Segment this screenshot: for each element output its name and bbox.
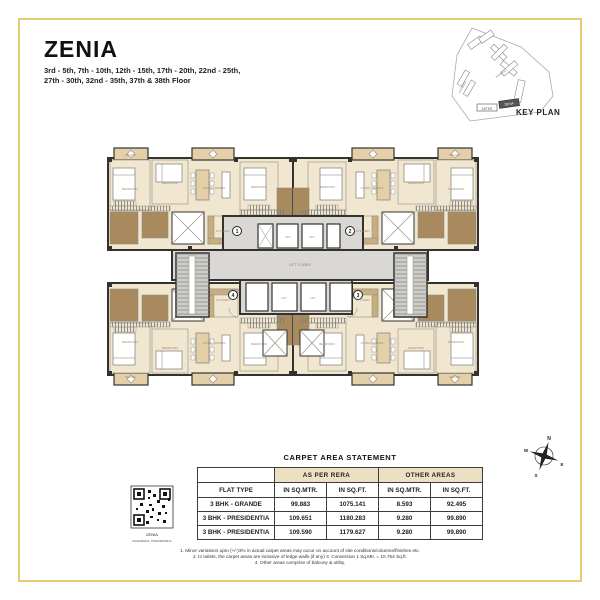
plan-shape [210, 355, 214, 360]
plan-shape [191, 347, 195, 352]
plan-shape [300, 210, 346, 215]
floors-line-2: 27th - 30th, 32nd - 35th, 37th & 38th Fl… [44, 76, 240, 86]
duct-shaft [246, 283, 268, 311]
plan-shape [391, 173, 395, 178]
compass-e: E [560, 462, 563, 467]
keyplan-aster-label: ASTER [482, 107, 493, 111]
plan-shape [450, 327, 472, 332]
table-row: 3 BHK - PRESIDENTIA 109.651 1180.283 9.2… [198, 512, 483, 526]
plan-label: BEDROOM [319, 342, 335, 346]
plan-label: BEDROOM [251, 342, 267, 346]
table-row: 3 BHK - PRESIDENTIA 109.590 1179.627 9.2… [198, 526, 483, 540]
plan-shape [168, 498, 170, 501]
plan-shape [300, 318, 346, 323]
plan-label: LIFT [285, 235, 291, 239]
plan-shape [162, 505, 165, 508]
cell-value: 92.495 [431, 498, 483, 512]
plan-shape [108, 371, 112, 375]
plan-shape [234, 371, 238, 375]
plan-shape [146, 510, 149, 513]
plan-shape [418, 212, 444, 238]
cell-value: 9.280 [379, 512, 431, 526]
plan-label: BEDROOM [122, 340, 138, 344]
plan-shape [372, 173, 376, 178]
cell-value: 99.890 [431, 526, 483, 540]
plan-label: BEDROOM [319, 185, 335, 189]
plan-shape [108, 158, 112, 162]
plan-label: BEDROOM [162, 181, 178, 185]
plan-shape [450, 201, 472, 206]
plan-shape [110, 322, 170, 327]
plan-shape [416, 322, 476, 327]
plan-shape [372, 216, 378, 238]
plan-shape [210, 173, 214, 178]
plan-shape [152, 508, 154, 511]
plan-shape [356, 172, 364, 198]
plan-shape [240, 210, 286, 215]
plan-shape [110, 289, 138, 321]
brochure-page: LIFT LOBBYLIFTLIFTLIFTLIFT1243BEDROOMBED… [0, 0, 600, 600]
plan-label: 4 [232, 293, 235, 299]
plan-shape [391, 339, 395, 344]
compass-s: S [534, 473, 537, 478]
plan-shape [156, 351, 182, 369]
plan-label: BEDROOM [408, 346, 424, 350]
duct-shaft [330, 283, 352, 311]
col-header-sqft-other: IN SQ.FT. [431, 483, 483, 498]
plan-label: KITCHEN [356, 298, 369, 302]
page-title: ZENIA [44, 36, 240, 63]
plan-shape [136, 508, 138, 510]
plan-shape [293, 371, 297, 375]
compass-w: W [524, 448, 529, 453]
plan-shape [113, 168, 135, 200]
floors-line-1: 3rd - 5th, 7th - 10th, 12th - 15th, 17th… [44, 66, 240, 76]
plan-shape [391, 181, 395, 186]
plan-label: BEDROOM [251, 185, 267, 189]
plan-shape [196, 170, 209, 200]
plan-shape [240, 318, 286, 323]
cell-flat-type: 3 BHK - GRANDE [198, 498, 275, 512]
plan-shape [348, 158, 352, 162]
plan-label: BEDROOM [448, 340, 464, 344]
plan-label: BALCONY [125, 376, 137, 379]
plan-shape [191, 173, 195, 178]
plan-label: KITCHEN [216, 229, 229, 233]
table-corner-cell [198, 468, 275, 483]
cell-flat-type: 3 BHK - PRESIDENTIA [198, 512, 275, 526]
duct-shaft [327, 224, 340, 248]
plan-shape [146, 521, 149, 524]
plan-shape [150, 516, 153, 518]
carpet-area-statement: CARPET AREA STATEMENT AS PER RERA OTHER … [197, 453, 483, 540]
header: ZENIA 3rd - 5th, 7th - 10th, 12th - 15th… [44, 36, 240, 86]
col-header-flat-type: FLAT TYPE [198, 483, 275, 498]
plan-shape [372, 347, 376, 352]
plan-shape [474, 246, 478, 250]
plan-shape [191, 339, 195, 344]
plan-label: LIVING / DINING [361, 341, 385, 345]
key-plan-label: KEY PLAN [516, 108, 560, 117]
plan-shape [293, 158, 297, 162]
plan-shape [248, 323, 270, 328]
qr-caption-rera: MAHARERA: P51800000644 [132, 539, 171, 543]
plan-shape [196, 333, 209, 363]
plan-label: BEDROOM [122, 187, 138, 191]
plan-shape [108, 246, 112, 250]
plan-shape [356, 335, 364, 361]
plan-label: BEDROOM [162, 346, 178, 350]
lift-lobby-label: LIFT LOBBY [289, 262, 312, 267]
plan-shape [404, 164, 430, 182]
plan-shape [158, 512, 161, 515]
plan-label: 1 [236, 229, 239, 235]
plan-shape [377, 170, 390, 200]
plan-shape [149, 504, 152, 506]
plan-shape [320, 168, 342, 200]
plan-shape [391, 347, 395, 352]
plan-shape [148, 497, 150, 499]
plan-shape [153, 494, 156, 497]
plan-shape [407, 256, 413, 314]
plan-shape [316, 323, 338, 328]
table-title: CARPET AREA STATEMENT [197, 453, 483, 462]
cell-value: 109.651 [275, 512, 327, 526]
compass-n: N [547, 436, 551, 442]
plan-shape [110, 212, 138, 244]
qr-caption-title: ZENIA [146, 532, 158, 537]
plan-shape [316, 205, 338, 210]
plan-shape [391, 189, 395, 194]
plan-shape [234, 158, 238, 162]
cell-value: 109.590 [275, 526, 327, 540]
plan-shape [372, 355, 376, 360]
plan-shape [148, 490, 151, 493]
plan-label: BALCONY [449, 376, 461, 379]
plan-shape [165, 512, 167, 514]
plan-shape [222, 335, 230, 361]
cell-flat-type: 3 BHK - PRESIDENTIA [198, 526, 275, 540]
cell-value: 1075.141 [327, 498, 379, 512]
plan-shape [191, 181, 195, 186]
plan-shape [474, 283, 478, 287]
cell-value: 99.890 [431, 512, 483, 526]
plan-shape [474, 158, 478, 162]
plan-label: BALCONY [125, 154, 137, 157]
plan-shape [210, 347, 214, 352]
plan-label: BALCONY [449, 154, 461, 157]
plan-shape [248, 205, 270, 210]
plan-label: BEDROOM [408, 181, 424, 185]
plan-shape [377, 333, 390, 363]
plan-shape [372, 295, 378, 317]
col-group-rera: AS PER RERA [275, 468, 379, 483]
plan-shape [157, 500, 160, 503]
plan-shape [114, 201, 136, 206]
plan-label: LIFT [309, 235, 315, 239]
col-header-sqmtr-other: IN SQ.MTR. [379, 483, 431, 498]
plan-shape [244, 168, 266, 200]
plan-shape [137, 492, 141, 496]
col-header-sqft-rera: IN SQ.FT. [327, 483, 379, 498]
plan-label: KITCHEN [216, 298, 229, 302]
plan-label: LIVING / DINING [203, 186, 227, 190]
plan-label: BEDROOM [448, 187, 464, 191]
cell-value: 1180.283 [327, 512, 379, 526]
plan-shape [114, 327, 136, 332]
plan-shape [448, 212, 476, 244]
plan-shape [391, 355, 395, 360]
plan-shape [140, 503, 143, 506]
plan-shape [451, 333, 473, 365]
plan-shape [157, 519, 159, 521]
plan-label: LIFT [310, 296, 316, 300]
plan-label: LIFT [281, 296, 287, 300]
footnotes: 1. Minor variations upto (+/-)3% in actu… [0, 548, 600, 567]
cell-value: 1179.627 [327, 526, 379, 540]
col-header-sqmtr-rera: IN SQ.MTR. [275, 483, 327, 498]
cell-value: 8.593 [379, 498, 431, 512]
plan-shape [163, 492, 167, 496]
plan-shape [222, 172, 230, 198]
plan-shape [208, 216, 214, 238]
plan-label: KITCHEN [356, 229, 369, 233]
plan-shape [448, 289, 476, 321]
plan-shape [163, 520, 166, 523]
plan-shape [474, 371, 478, 375]
plan-shape [113, 333, 135, 365]
cell-value: 9.280 [379, 526, 431, 540]
carpet-area-table: AS PER RERA OTHER AREAS FLAT TYPE IN SQ.… [197, 467, 483, 540]
plan-shape [191, 189, 195, 194]
plan-label: 2 [349, 229, 352, 235]
plan-shape [156, 164, 182, 182]
plan-shape [142, 295, 168, 321]
plan-label: LIVING / DINING [361, 186, 385, 190]
footnote-3: 4. Other areas comprise of balcony & uti… [0, 560, 600, 566]
plan-shape [404, 351, 430, 369]
plan-shape [416, 206, 476, 211]
plan-shape [191, 355, 195, 360]
plan-shape [451, 168, 473, 200]
cell-value: 99.883 [275, 498, 327, 512]
table-row: 3 BHK - GRANDE 99.883 1075.141 8.593 92.… [198, 498, 483, 512]
plan-shape [138, 519, 140, 521]
plan-shape [348, 371, 352, 375]
plan-shape [110, 206, 170, 211]
plan-shape [189, 256, 195, 314]
plan-label: LIVING / DINING [203, 341, 227, 345]
plan-shape [142, 212, 168, 238]
plan-shape [108, 283, 112, 287]
col-group-other: OTHER AREAS [379, 468, 483, 483]
